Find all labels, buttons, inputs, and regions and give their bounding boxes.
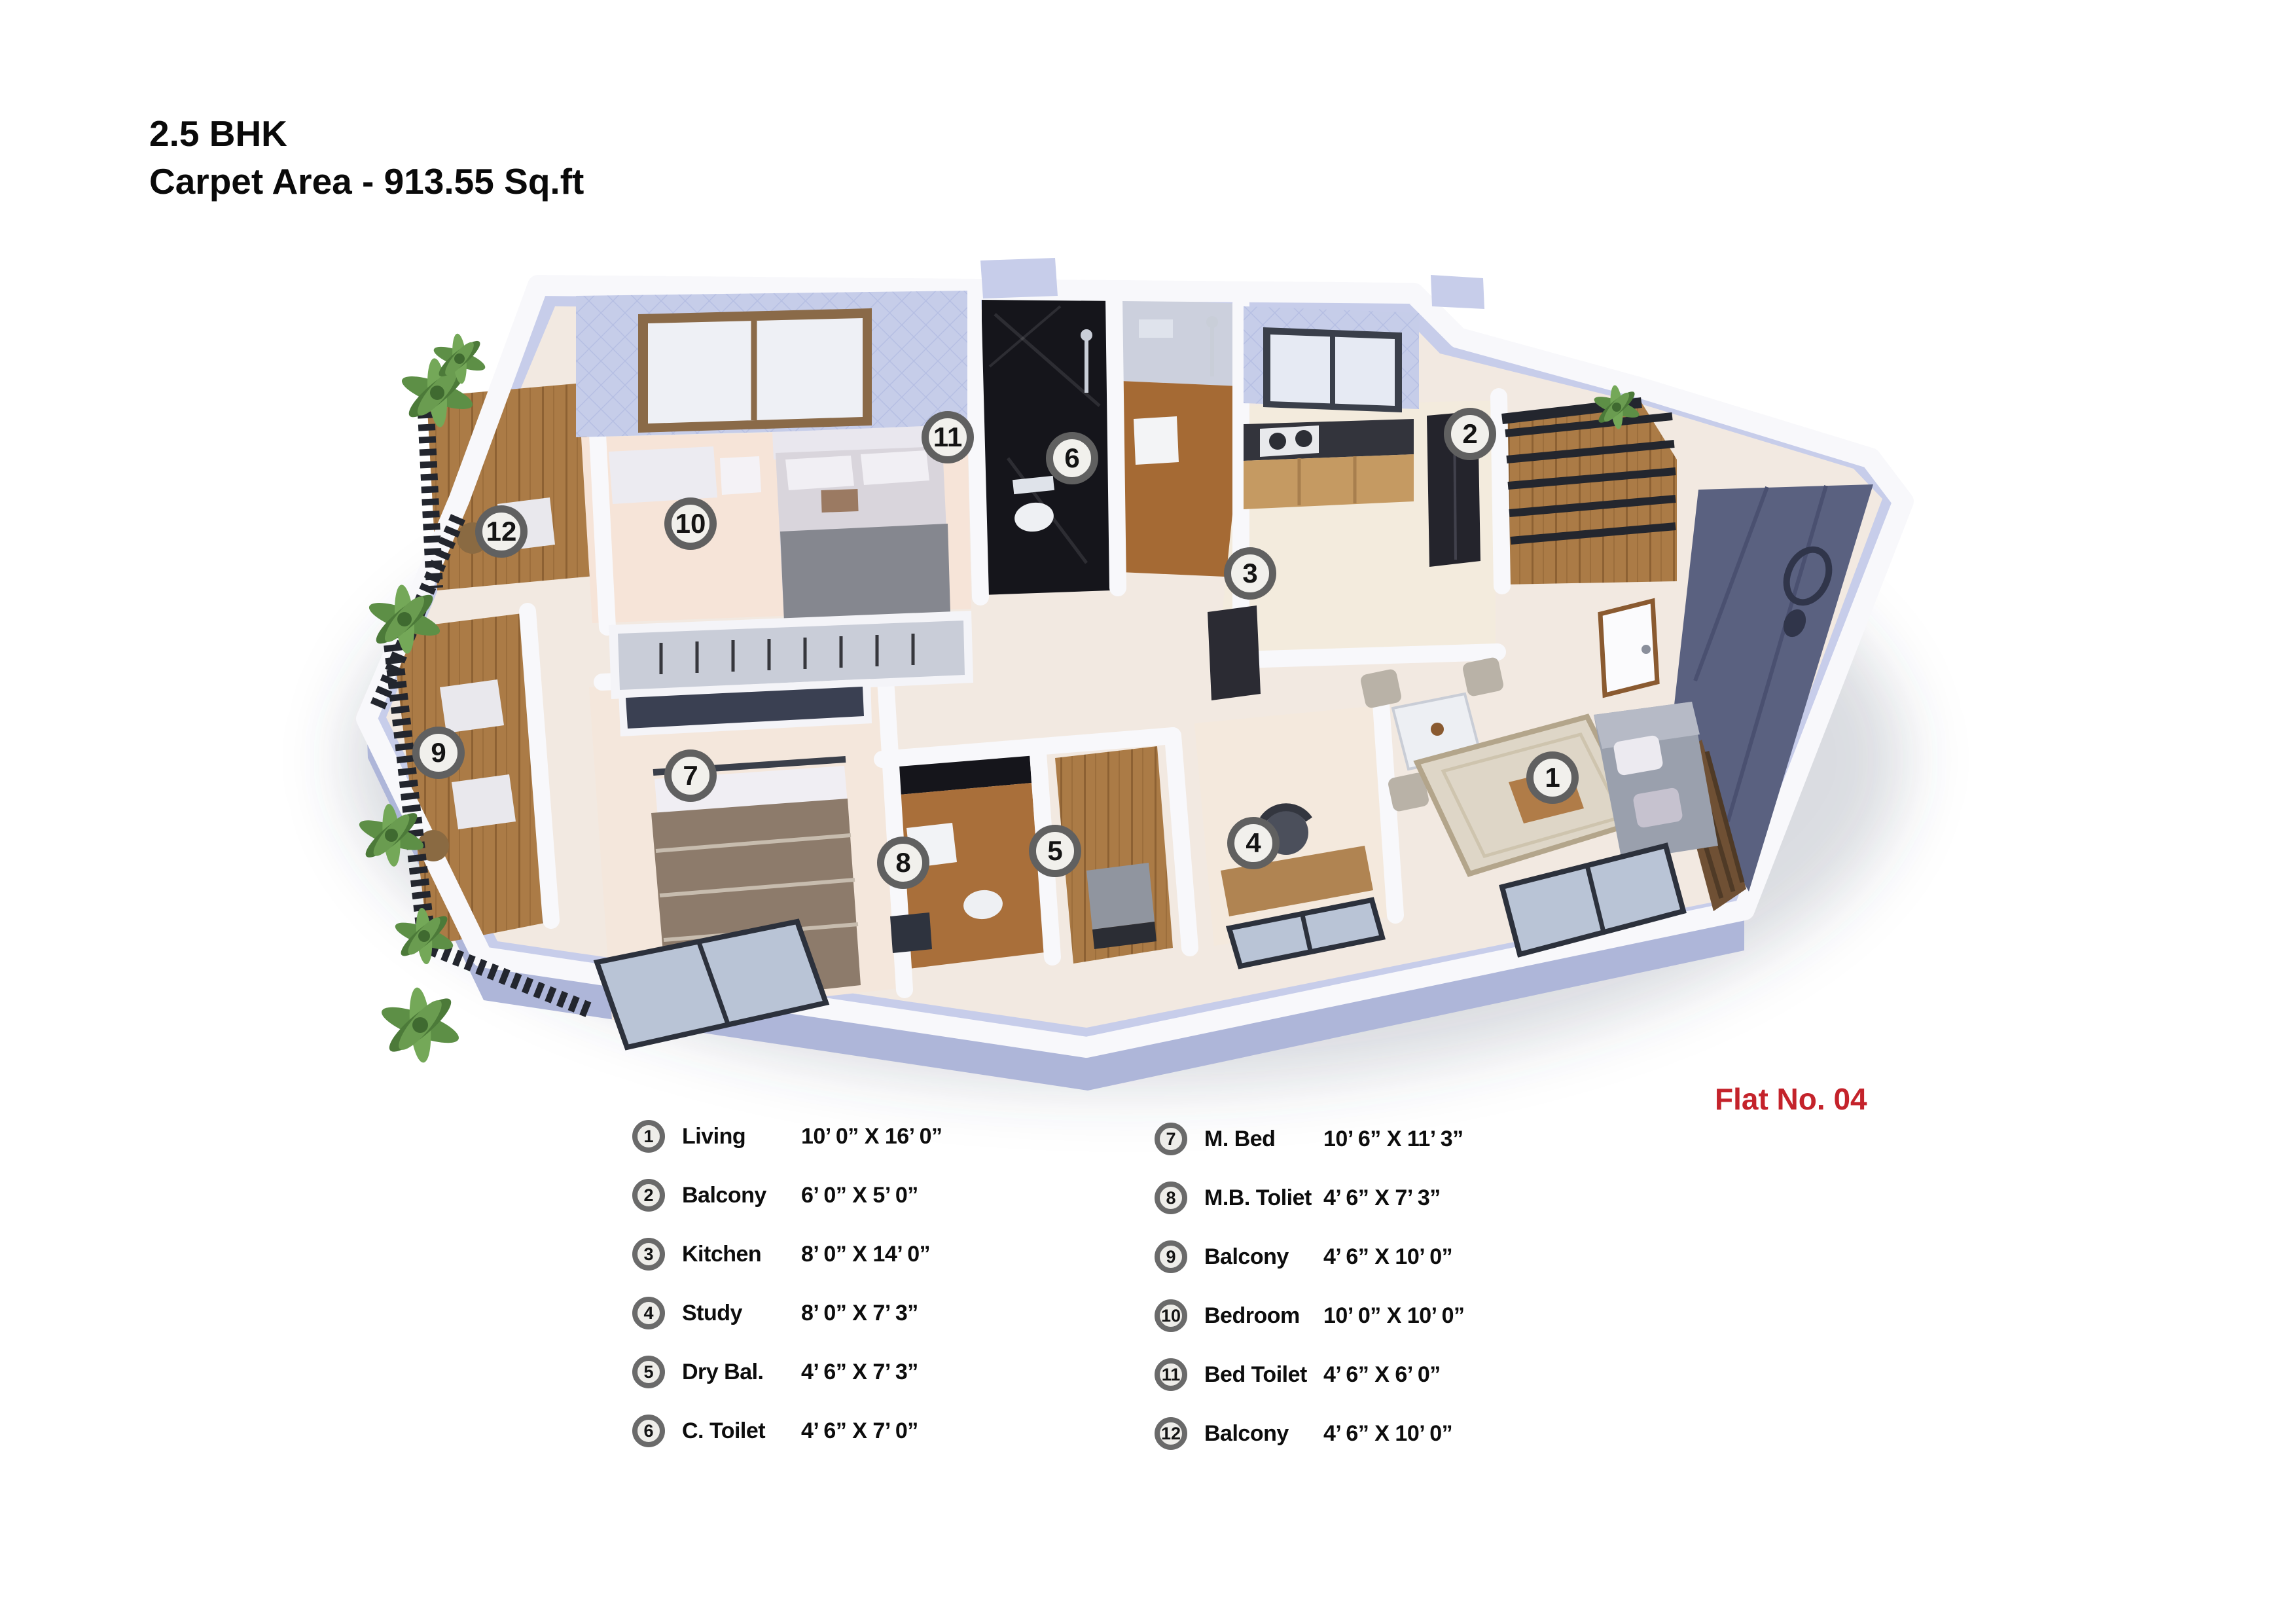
legend-item-label: C. Toilet	[682, 1418, 801, 1444]
legend-item-size: 6’ 0” X 5’ 0”	[801, 1183, 918, 1208]
flyer-page: 2.5 BHK Carpet Area - 913.55 Sq.ft Flat …	[0, 0, 2296, 1624]
legend-item-label: M.B. Toliet	[1204, 1185, 1323, 1211]
plan-badge-1: 1	[1526, 751, 1579, 804]
carpet-area-subtitle: Carpet Area - 913.55 Sq.ft	[149, 158, 584, 206]
plan-badge-3: 3	[1224, 547, 1276, 600]
plan-type-title: 2.5 BHK	[149, 110, 584, 158]
legend-item: 5 Dry Bal. 4’ 6” X 7’ 3”	[632, 1343, 942, 1401]
legend-item-size: 4’ 6” X 6’ 0”	[1323, 1362, 1441, 1388]
legend-item-size: 10’ 0” X 16’ 0”	[801, 1124, 942, 1149]
legend-item-size: 10’ 0” X 10’ 0”	[1323, 1303, 1465, 1329]
plan-badge-7: 7	[664, 749, 717, 802]
legend-item: 6 C. Toilet 4’ 6” X 7’ 0”	[632, 1401, 942, 1460]
legend-item-label: Kitchen	[682, 1242, 801, 1267]
legend-item: 8 M.B. Toliet 4’ 6” X 7’ 3”	[1155, 1168, 1465, 1227]
legend-item-number: 1	[632, 1120, 665, 1153]
legend-item-number: 10	[1155, 1299, 1187, 1332]
legend-item-label: Study	[682, 1301, 801, 1326]
plan-badge-8: 8	[877, 837, 929, 889]
legend-item-number: 6	[632, 1415, 665, 1447]
legend-item: 12 Balcony 4’ 6” X 10’ 0”	[1155, 1404, 1465, 1463]
legend-item-label: M. Bed	[1204, 1127, 1323, 1152]
plan-badge-4: 4	[1227, 817, 1280, 869]
plan-badge-6: 6	[1046, 432, 1098, 484]
legend-item-number: 9	[1155, 1240, 1187, 1273]
legend-item: 10 Bedroom 10’ 0” X 10’ 0”	[1155, 1286, 1465, 1345]
legend-item-label: Bed Toilet	[1204, 1362, 1323, 1388]
title-block: 2.5 BHK Carpet Area - 913.55 Sq.ft	[149, 110, 584, 206]
legend-item-label: Living	[682, 1124, 801, 1149]
legend-item: 1 Living 10’ 0” X 16’ 0”	[632, 1107, 942, 1166]
legend-item-label: Dry Bal.	[682, 1360, 801, 1385]
plan-badge-11: 11	[922, 411, 974, 463]
legend-item: 3 Kitchen 8’ 0” X 14’ 0”	[632, 1225, 942, 1284]
legend-item-size: 8’ 0” X 7’ 3”	[801, 1301, 918, 1326]
legend-item-label: Balcony	[1204, 1244, 1323, 1270]
legend-item-number: 2	[632, 1179, 665, 1212]
plan-badge-12: 12	[475, 505, 528, 558]
legend-item: 9 Balcony 4’ 6” X 10’ 0”	[1155, 1227, 1465, 1286]
legend-item-size: 4’ 6” X 7’ 0”	[801, 1418, 918, 1444]
legend-item-size: 4’ 6” X 7’ 3”	[1323, 1185, 1441, 1211]
floor-plan-illustration	[0, 0, 2296, 1624]
legend-item: 4 Study 8’ 0” X 7’ 3”	[632, 1284, 942, 1343]
legend-item: 7 M. Bed 10’ 6” X 11’ 3”	[1155, 1110, 1465, 1168]
plan-badge-9: 9	[412, 727, 465, 779]
legend-item-label: Bedroom	[1204, 1303, 1323, 1329]
legend-item-size: 4’ 6” X 10’ 0”	[1323, 1244, 1452, 1270]
flat-number-label: Flat No. 04	[1715, 1081, 1867, 1117]
plan-badge-5: 5	[1029, 825, 1081, 877]
legend-item-size: 10’ 6” X 11’ 3”	[1323, 1127, 1463, 1152]
legend-item-number: 4	[632, 1297, 665, 1329]
legend-item-label: Balcony	[682, 1183, 801, 1208]
legend-item-size: 4’ 6” X 10’ 0”	[1323, 1421, 1452, 1447]
legend-item-number: 3	[632, 1238, 665, 1271]
legend-item-size: 8’ 0” X 14’ 0”	[801, 1242, 930, 1267]
plan-badge-2: 2	[1444, 408, 1496, 460]
legend-item-number: 5	[632, 1356, 665, 1388]
legend-item: 11 Bed Toilet 4’ 6” X 6’ 0”	[1155, 1345, 1465, 1404]
legend-item: 2 Balcony 6’ 0” X 5’ 0”	[632, 1166, 942, 1225]
legend-item-number: 8	[1155, 1182, 1187, 1214]
legend-item-label: Balcony	[1204, 1421, 1323, 1447]
legend-column-left: 1 Living 10’ 0” X 16’ 0” 2 Balcony 6’ 0”…	[632, 1107, 942, 1460]
plan-badge-10: 10	[664, 497, 717, 550]
legend-item-number: 12	[1155, 1417, 1187, 1450]
legend-item-size: 4’ 6” X 7’ 3”	[801, 1360, 918, 1385]
legend-item-number: 11	[1155, 1358, 1187, 1391]
legend-item-number: 7	[1155, 1123, 1187, 1155]
legend-column-right: 7 M. Bed 10’ 6” X 11’ 3” 8 M.B. Toliet 4…	[1155, 1110, 1465, 1463]
